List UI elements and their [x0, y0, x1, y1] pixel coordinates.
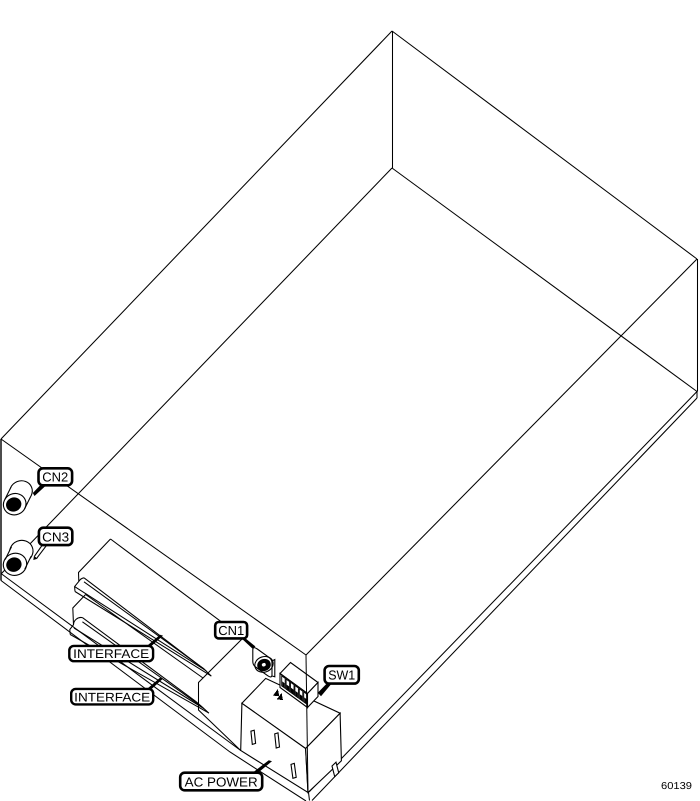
- svg-text:60139: 60139: [661, 781, 692, 792]
- svg-text:CN2: CN2: [42, 470, 68, 485]
- svg-text:INTERFACE: INTERFACE: [74, 690, 150, 704]
- svg-text:AC POWER: AC POWER: [185, 775, 258, 790]
- svg-text:CN1: CN1: [218, 623, 244, 638]
- svg-text:CN3: CN3: [42, 529, 69, 544]
- svg-text:INTERFACE: INTERFACE: [73, 647, 149, 661]
- svg-text:SW1: SW1: [328, 668, 355, 683]
